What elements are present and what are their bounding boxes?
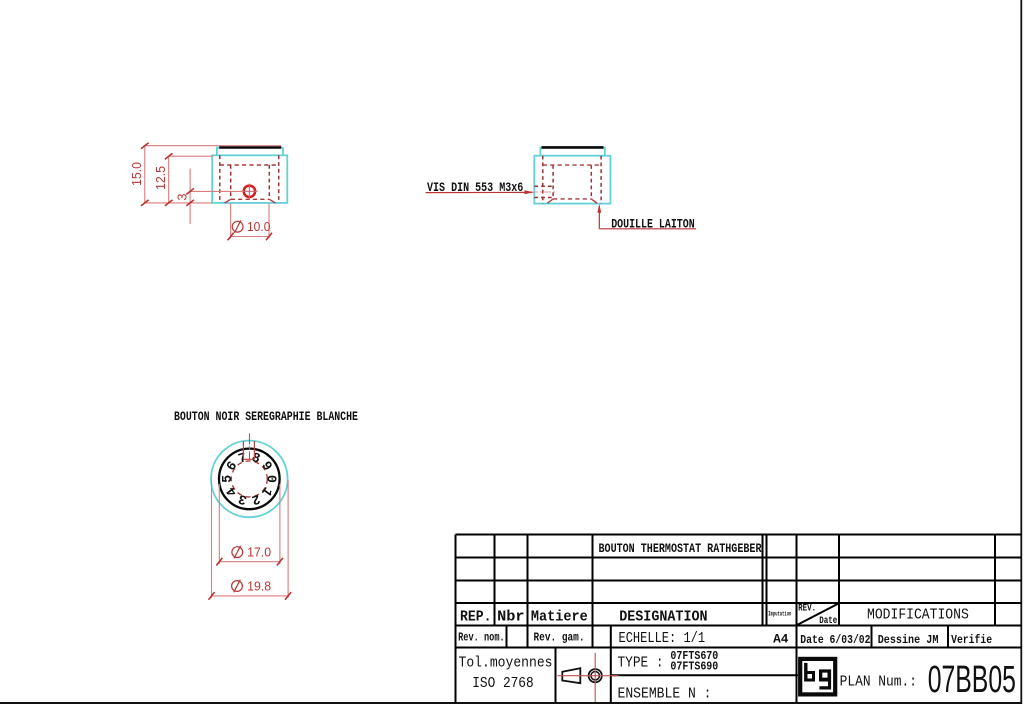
svg-text:BOUTON NOIR SEREGRAPHIE BLANCH: BOUTON NOIR SEREGRAPHIE BLANCHE	[174, 410, 358, 424]
svg-text:MODIFICATIONS: MODIFICATIONS	[867, 608, 969, 624]
svg-text:Rev. gam.: Rev. gam.	[534, 632, 585, 645]
svg-text:9: 9	[257, 459, 274, 474]
svg-text:0: 0	[262, 475, 277, 483]
svg-text:PLAN Num.:: PLAN Num.:	[840, 673, 917, 690]
svg-text:15.0: 15.0	[130, 162, 144, 186]
svg-text:19.8: 19.8	[247, 580, 271, 594]
svg-text:Dessine JM: Dessine JM	[878, 633, 939, 647]
svg-text:TYPE :: TYPE :	[618, 655, 664, 672]
svg-text:Date 6/03/02: Date 6/03/02	[800, 633, 870, 647]
svg-text:REP.: REP.	[460, 608, 492, 625]
svg-text:Nbr: Nbr	[497, 608, 524, 625]
svg-text:REV.: REV.	[798, 603, 816, 615]
svg-text:5: 5	[221, 475, 236, 483]
svg-text:Rev. nom.: Rev. nom.	[458, 632, 505, 645]
svg-text:10.0: 10.0	[247, 220, 270, 234]
svg-text:Imputation: Imputation	[768, 611, 791, 618]
svg-text:Matiere: Matiere	[531, 608, 588, 625]
svg-text:ECHELLE: 1/1: ECHELLE: 1/1	[619, 630, 706, 647]
svg-text:Tol.moyennes: Tol.moyennes	[459, 655, 553, 672]
svg-text:07BB05: 07BB05	[928, 659, 1016, 701]
svg-text:ISO 2768: ISO 2768	[472, 675, 534, 692]
svg-text:17.0: 17.0	[247, 546, 271, 560]
svg-text:ENSEMBLE N :: ENSEMBLE N :	[618, 686, 712, 703]
svg-text:A4: A4	[773, 631, 789, 646]
svg-text:Date: Date	[819, 615, 837, 627]
svg-text:2: 2	[249, 490, 261, 507]
svg-text:07FTS690: 07FTS690	[670, 660, 718, 673]
svg-text:3: 3	[176, 193, 190, 200]
svg-text:DESIGNATION: DESIGNATION	[619, 608, 707, 625]
svg-text:12.5: 12.5	[154, 166, 168, 190]
svg-text:BOUTON THERMOSTAT RATHGEBER: BOUTON THERMOSTAT RATHGEBER	[599, 542, 762, 556]
svg-text:Verifie: Verifie	[951, 633, 992, 647]
